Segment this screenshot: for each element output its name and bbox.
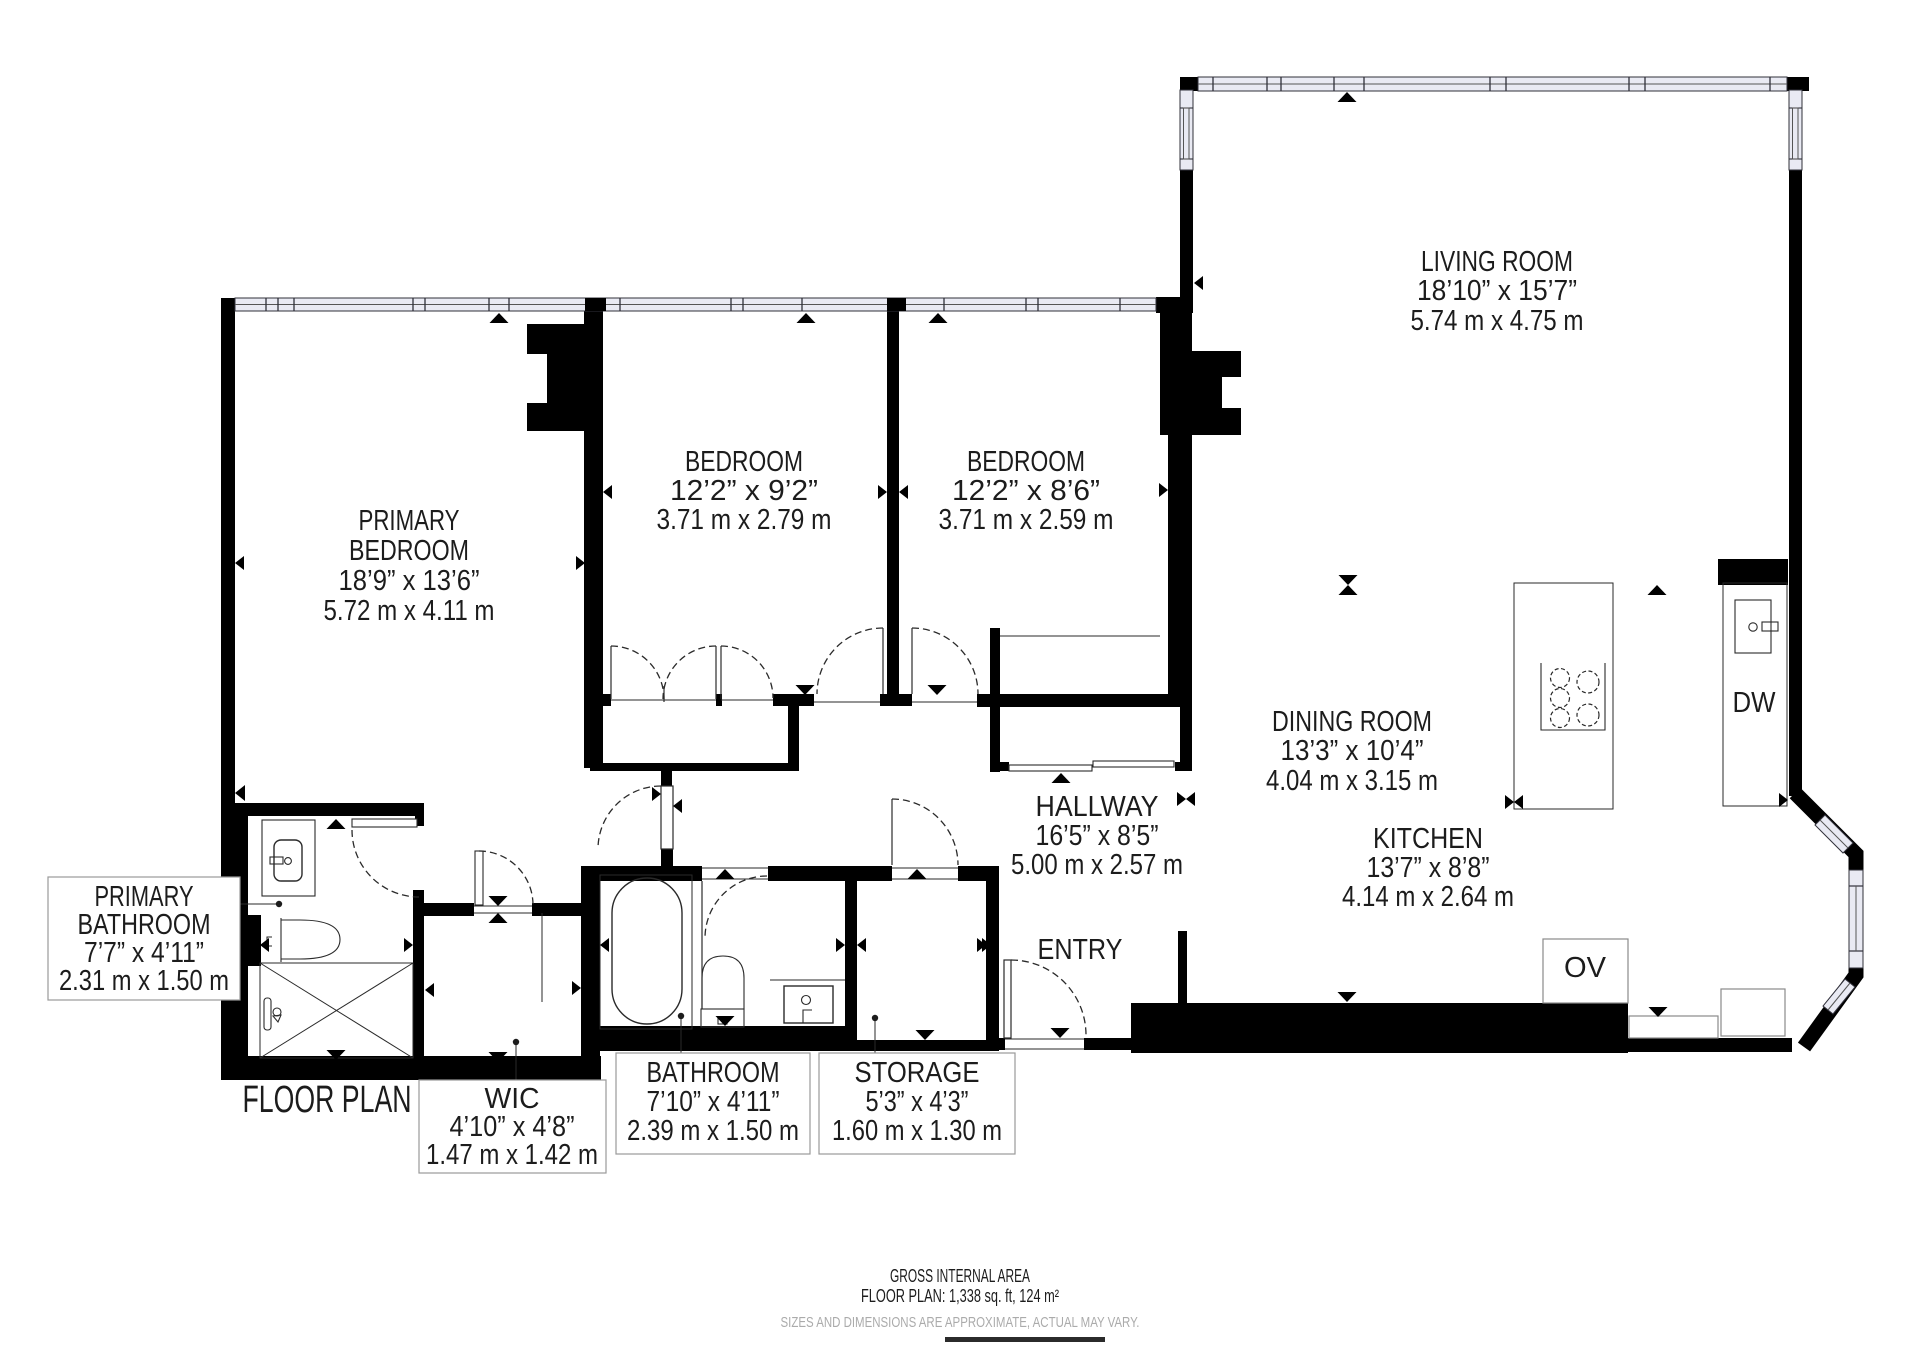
svg-text:13’7” x 8’8”: 13’7” x 8’8”	[1367, 852, 1490, 884]
svg-text:5.72 m x 4.11 m: 5.72 m x 4.11 m	[324, 595, 495, 627]
svg-text:GROSS INTERNAL AREA: GROSS INTERNAL AREA	[890, 1266, 1030, 1286]
svg-text:16’5” x 8’5”: 16’5” x 8’5”	[1036, 820, 1159, 852]
svg-text:KITCHEN: KITCHEN	[1373, 823, 1483, 855]
svg-text:5.74 m x 4.75 m: 5.74 m x 4.75 m	[1411, 305, 1584, 337]
svg-text:BEDROOM: BEDROOM	[349, 535, 469, 567]
svg-text:DW: DW	[1733, 687, 1776, 719]
svg-text:18’9” x 13’6”: 18’9” x 13’6”	[339, 565, 480, 597]
svg-text:12’2” x 8’6”: 12’2” x 8’6”	[952, 475, 1100, 507]
svg-text:DINING ROOM: DINING ROOM	[1272, 706, 1432, 738]
svg-text:STORAGE: STORAGE	[855, 1057, 980, 1089]
svg-text:5.00 m x 2.57 m: 5.00 m x 2.57 m	[1011, 849, 1183, 881]
svg-text:1.47 m x 1.42 m: 1.47 m x 1.42 m	[426, 1139, 598, 1171]
svg-text:3.71 m x 2.79 m: 3.71 m x 2.79 m	[657, 504, 832, 536]
svg-text:FLOOR PLAN: FLOOR PLAN	[243, 1079, 412, 1121]
svg-text:3.71 m x 2.59 m: 3.71 m x 2.59 m	[939, 504, 1114, 536]
svg-text:LIVING ROOM: LIVING ROOM	[1421, 246, 1573, 278]
svg-text:PRIMARY: PRIMARY	[359, 505, 460, 537]
svg-text:ENTRY: ENTRY	[1038, 934, 1123, 966]
svg-text:BEDROOM: BEDROOM	[685, 446, 803, 478]
svg-text:4.14 m x 2.64 m: 4.14 m x 2.64 m	[1342, 881, 1514, 913]
svg-text:2.39 m x 1.50 m: 2.39 m x 1.50 m	[627, 1115, 799, 1147]
svg-text:7’10” x 4’11”: 7’10” x 4’11”	[647, 1086, 780, 1118]
svg-text:BEDROOM: BEDROOM	[967, 446, 1085, 478]
svg-text:1.60 m x 1.30 m: 1.60 m x 1.30 m	[832, 1115, 1002, 1147]
svg-text:13’3” x 10’4”: 13’3” x 10’4”	[1281, 735, 1424, 767]
svg-text:12’2” x 9’2”: 12’2” x 9’2”	[670, 475, 818, 507]
svg-text:SIZES AND DIMENSIONS ARE APPRO: SIZES AND DIMENSIONS ARE APPROXIMATE, AC…	[781, 1315, 1140, 1331]
svg-text:BATHROOM: BATHROOM	[647, 1057, 780, 1089]
svg-text:2.31 m x 1.50 m: 2.31 m x 1.50 m	[59, 965, 229, 997]
svg-text:FLOOR PLAN: 1,338 sq. ft, 124: FLOOR PLAN: 1,338 sq. ft, 124 m²	[861, 1286, 1059, 1306]
svg-text:4.04 m x 3.15 m: 4.04 m x 3.15 m	[1266, 765, 1438, 797]
svg-text:OV: OV	[1564, 952, 1606, 984]
svg-text:18’10” x 15’7”: 18’10” x 15’7”	[1417, 275, 1577, 307]
svg-text:5’3” x 4’3”: 5’3” x 4’3”	[866, 1086, 969, 1118]
svg-text:HALLWAY: HALLWAY	[1036, 791, 1159, 823]
